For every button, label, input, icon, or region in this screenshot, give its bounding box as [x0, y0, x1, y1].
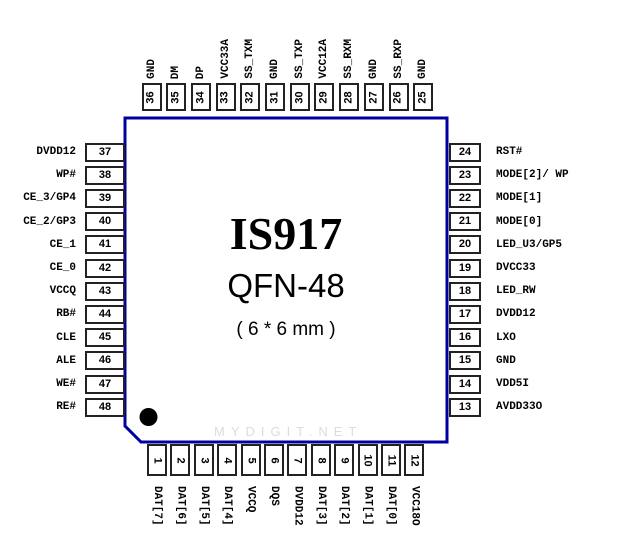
pin-3-box: 3	[194, 444, 214, 476]
pin-25-label: GND	[416, 59, 430, 79]
pin-1-label: DAT[7]	[150, 486, 164, 526]
pin-27-label: GND	[367, 59, 381, 79]
pin-32-label: SS_TXM	[243, 39, 257, 79]
pin-31-number: 31	[270, 91, 281, 103]
pin-6-box: 6	[264, 444, 284, 476]
pin-28-label: SS_RXM	[342, 39, 356, 79]
pin-35-box: 35	[166, 83, 186, 111]
pin-37-label: DVDD12	[36, 145, 76, 159]
pin-13-number: 13	[459, 402, 471, 413]
pin-43-box: 43	[85, 282, 125, 301]
watermark: MYDIGIT.NET	[214, 424, 362, 439]
pin-33-number: 33	[220, 91, 231, 103]
chip-package: QFN-48	[125, 269, 447, 302]
pin-19-label: DVCC33	[496, 261, 536, 275]
pin-38-box: 38	[85, 166, 125, 185]
pin-6-label: DQS	[267, 486, 281, 506]
pin-48-number: 48	[99, 402, 111, 413]
pin-38-label: WP#	[56, 168, 76, 182]
pin-19-box: 19	[449, 259, 481, 278]
pinout-diagram: MYDIGIT.NET IS917 QFN-48 ( 6 * 6 mm ) 36…	[0, 0, 617, 540]
pin-47-number: 47	[99, 379, 111, 390]
pin-42-number: 42	[99, 263, 111, 274]
pin-41-box: 41	[85, 235, 125, 254]
pin-23-label: MODE[2]/ WP	[496, 168, 569, 182]
pin-7-number: 7	[292, 457, 303, 463]
pin-4-number: 4	[222, 457, 233, 463]
pin-21-label: MODE[0]	[496, 215, 542, 229]
pin-31-label: GND	[268, 59, 282, 79]
pin-29-number: 29	[319, 91, 330, 103]
pin-33-label: VCC33A	[219, 39, 233, 79]
pin-21-box: 21	[449, 212, 481, 231]
pin-45-number: 45	[99, 332, 111, 343]
pin-36-number: 36	[146, 91, 157, 103]
pin-17-box: 17	[449, 305, 481, 324]
pin-37-number: 37	[99, 147, 111, 158]
pin-2-label: DAT[6]	[173, 486, 187, 526]
pin-28-box: 28	[339, 83, 359, 111]
pin-3-label: DAT[5]	[197, 486, 211, 526]
pin-31-box: 31	[265, 83, 285, 111]
pin-37-box: 37	[85, 143, 125, 162]
pin-33-box: 33	[216, 83, 236, 111]
pin-47-label: WE#	[56, 377, 76, 391]
pin-44-label: RB#	[56, 307, 76, 321]
pin-22-number: 22	[459, 193, 471, 204]
pin-12-number: 12	[409, 454, 420, 466]
pin1-indicator-dot	[140, 408, 158, 426]
pin-18-number: 18	[459, 286, 471, 297]
pin-48-label: RE#	[56, 400, 76, 414]
pin-4-label: DAT[4]	[220, 486, 234, 526]
pin-44-box: 44	[85, 305, 125, 324]
pin-20-label: LED_U3/GP5	[496, 238, 562, 252]
pin-11-box: 11	[381, 444, 401, 476]
pin-43-number: 43	[99, 286, 111, 297]
pin-5-number: 5	[245, 457, 256, 463]
pin-38-number: 38	[99, 170, 111, 181]
pin-25-box: 25	[413, 83, 433, 111]
pin-11-number: 11	[385, 454, 396, 466]
pin-10-label: DAT[1]	[361, 486, 375, 526]
pin-5-box: 5	[241, 444, 261, 476]
pin-5-label: VCCQ	[244, 486, 258, 512]
pin-11-label: DAT[0]	[384, 486, 398, 526]
pin-10-box: 10	[358, 444, 378, 476]
pin-7-box: 7	[287, 444, 307, 476]
pin-23-number: 23	[459, 170, 471, 181]
pin-25-number: 25	[418, 91, 429, 103]
pin-30-number: 30	[294, 91, 305, 103]
pin-39-number: 39	[99, 193, 111, 204]
pin-34-label: DP	[194, 66, 208, 79]
pin-4-box: 4	[217, 444, 237, 476]
pin-9-label: DAT[2]	[337, 486, 351, 526]
pin-3-number: 3	[198, 457, 209, 463]
pin-15-label: GND	[496, 354, 516, 368]
pin-30-label: SS_TXP	[293, 39, 307, 79]
pin-43-label: VCCQ	[50, 284, 76, 298]
pin-18-box: 18	[449, 282, 481, 301]
pin-32-box: 32	[240, 83, 260, 111]
pin-19-number: 19	[459, 263, 471, 274]
pin-39-label: CE_3/GP4	[23, 191, 76, 205]
pin-6-number: 6	[269, 457, 280, 463]
pin-17-label: DVDD12	[496, 307, 536, 321]
pin-13-box: 13	[449, 398, 481, 417]
pin-23-box: 23	[449, 166, 481, 185]
pin-12-box: 12	[404, 444, 424, 476]
pin-17-number: 17	[459, 309, 471, 320]
pin-45-box: 45	[85, 328, 125, 347]
pin-16-label: LXO	[496, 331, 516, 345]
pin-15-box: 15	[449, 351, 481, 370]
pin-35-label: DM	[169, 66, 183, 79]
pin-34-box: 34	[191, 83, 211, 111]
pin-18-label: LED_RW	[496, 284, 536, 298]
pin-12-label: VCC18O	[407, 486, 421, 526]
pin-27-box: 27	[364, 83, 384, 111]
pin-32-number: 32	[245, 91, 256, 103]
pin-26-number: 26	[393, 91, 404, 103]
pin-9-box: 9	[334, 444, 354, 476]
pin-9-number: 9	[339, 457, 350, 463]
pin-7-label: DVDD12	[290, 486, 304, 526]
chip-package-size: ( 6 * 6 mm )	[125, 320, 447, 339]
pin-22-box: 22	[449, 189, 481, 208]
pin-24-label: RST#	[496, 145, 522, 159]
pin-8-box: 8	[311, 444, 331, 476]
pin-39-box: 39	[85, 189, 125, 208]
pin-16-number: 16	[459, 332, 471, 343]
pin-41-number: 41	[99, 239, 111, 250]
pin-2-box: 2	[170, 444, 190, 476]
pin-29-box: 29	[314, 83, 334, 111]
pin-14-box: 14	[449, 375, 481, 394]
pin-34-number: 34	[195, 91, 206, 103]
pin-20-number: 20	[459, 239, 471, 250]
pin-27-number: 27	[368, 91, 379, 103]
pin-40-box: 40	[85, 212, 125, 231]
pin-16-box: 16	[449, 328, 481, 347]
pin-46-label: ALE	[56, 354, 76, 368]
pin-48-box: 48	[85, 398, 125, 417]
pin-24-number: 24	[459, 147, 471, 158]
pin-22-label: MODE[1]	[496, 191, 542, 205]
pin-40-number: 40	[99, 216, 111, 227]
pin-26-box: 26	[389, 83, 409, 111]
pin-47-box: 47	[85, 375, 125, 394]
pin-42-label: CE_0	[50, 261, 76, 275]
pin-41-label: CE_1	[50, 238, 76, 252]
pin-24-box: 24	[449, 143, 481, 162]
pin-1-number: 1	[152, 457, 163, 463]
pin-29-label: VCC12A	[317, 39, 331, 79]
pin-8-label: DAT[3]	[314, 486, 328, 526]
chip-part-number: IS917	[125, 211, 447, 257]
pin-2-number: 2	[175, 457, 186, 463]
pin-36-box: 36	[142, 83, 162, 111]
pin-15-number: 15	[459, 355, 471, 366]
pin-26-label: SS_RXP	[392, 39, 406, 79]
pin-35-number: 35	[171, 91, 182, 103]
pin-14-number: 14	[459, 379, 471, 390]
pin-36-label: GND	[145, 59, 159, 79]
pin-46-box: 46	[85, 351, 125, 370]
pin-20-box: 20	[449, 235, 481, 254]
pin-14-label: VDD5I	[496, 377, 529, 391]
pin-28-number: 28	[344, 91, 355, 103]
pin-30-box: 30	[290, 83, 310, 111]
pin-13-label: AVDD33O	[496, 400, 542, 414]
pin-44-number: 44	[99, 309, 111, 320]
pin-40-label: CE_2/GP3	[23, 215, 76, 229]
pin-21-number: 21	[459, 216, 471, 227]
pin-8-number: 8	[315, 457, 326, 463]
pin-10-number: 10	[362, 454, 373, 466]
pin-42-box: 42	[85, 259, 125, 278]
pin-46-number: 46	[99, 355, 111, 366]
pin-45-label: CLE	[56, 331, 76, 345]
pin-1-box: 1	[147, 444, 167, 476]
